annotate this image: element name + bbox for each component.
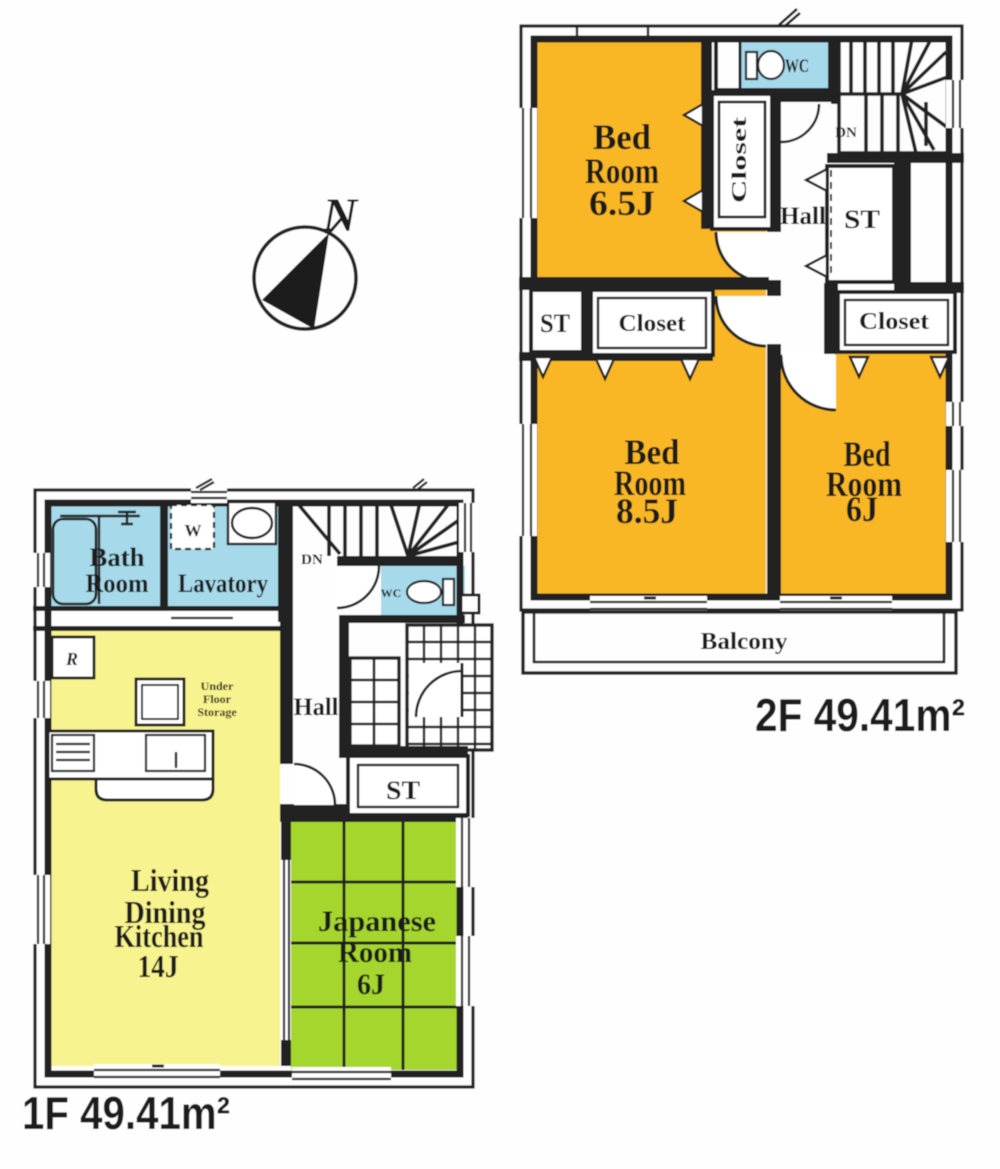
svg-text:ST: ST: [844, 205, 880, 234]
svg-text:R: R: [65, 649, 78, 669]
svg-text:Room: Room: [338, 936, 412, 969]
svg-text:W: W: [185, 521, 202, 540]
svg-text:Storage: Storage: [197, 705, 237, 719]
svg-text:DN: DN: [835, 125, 857, 141]
svg-text:ST: ST: [386, 776, 420, 805]
svg-text:6J: 6J: [846, 489, 878, 529]
svg-text:Japanese: Japanese: [318, 905, 436, 938]
svg-text:Hall: Hall: [294, 694, 339, 721]
svg-text:WC: WC: [785, 56, 809, 77]
svg-text:2F 49.41m²: 2F 49.41m²: [755, 689, 965, 741]
svg-text:Hall: Hall: [780, 203, 826, 230]
svg-text:DN: DN: [301, 552, 323, 568]
svg-text:Under: Under: [201, 679, 234, 693]
svg-text:1F 49.41m²: 1F 49.41m²: [22, 1087, 230, 1139]
svg-text:6J: 6J: [357, 968, 385, 1001]
svg-text:Balcony: Balcony: [701, 629, 788, 655]
svg-text:Closet: Closet: [619, 311, 686, 337]
svg-text:Floor: Floor: [203, 692, 232, 706]
svg-text:Living: Living: [131, 862, 209, 898]
svg-text:N: N: [322, 189, 360, 242]
svg-text:Lavatory: Lavatory: [178, 569, 268, 598]
svg-text:ST: ST: [540, 309, 570, 338]
svg-text:6.5J: 6.5J: [589, 183, 655, 223]
svg-text:Bath: Bath: [90, 543, 146, 572]
svg-text:WC: WC: [381, 586, 402, 600]
svg-text:8.5J: 8.5J: [616, 491, 678, 531]
svg-text:14J: 14J: [138, 948, 179, 984]
svg-text:Room: Room: [86, 569, 149, 598]
svg-text:Closet: Closet: [727, 117, 751, 203]
svg-text:Closet: Closet: [859, 309, 929, 335]
